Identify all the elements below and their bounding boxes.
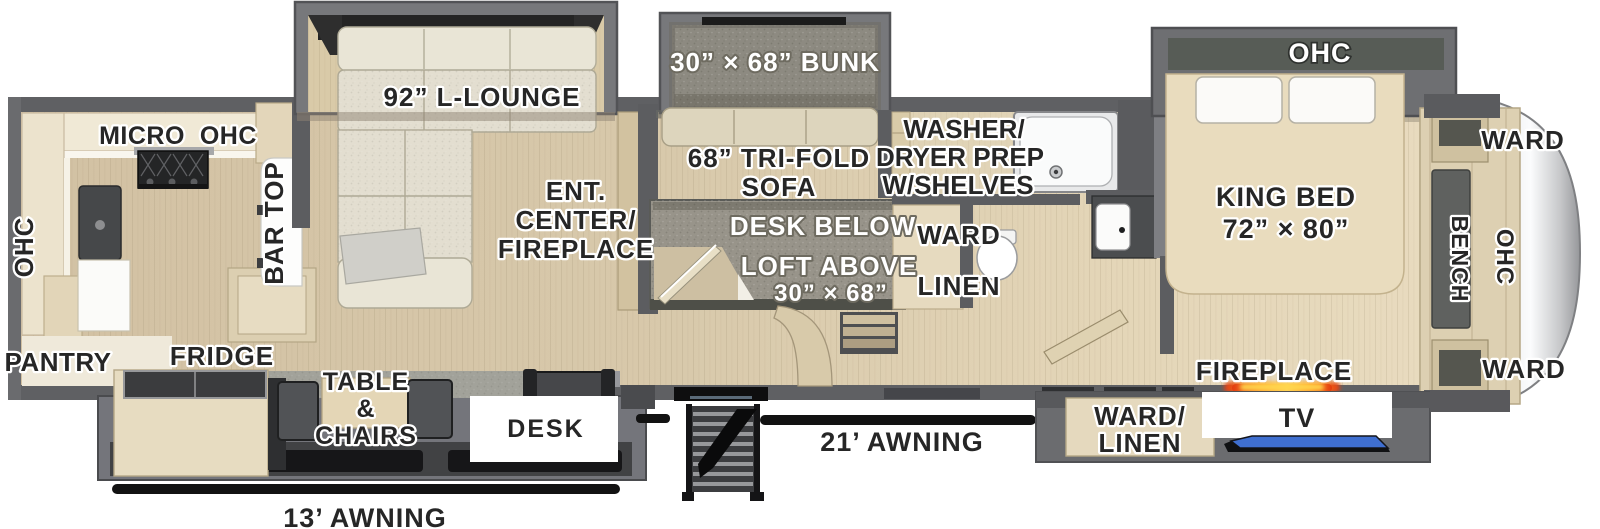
svg-text:DRYER PREP: DRYER PREP bbox=[876, 142, 1044, 172]
svg-text:LINEN: LINEN bbox=[1099, 428, 1182, 458]
svg-text:68” TRI-FOLD: 68” TRI-FOLD bbox=[688, 143, 870, 173]
svg-text:BAR TOP: BAR TOP bbox=[259, 161, 289, 285]
svg-text:13’ AWNING: 13’ AWNING bbox=[283, 503, 447, 529]
svg-text:MICRO OHC: MICRO OHC bbox=[99, 122, 257, 150]
svg-text:CHAIRS: CHAIRS bbox=[315, 422, 417, 450]
svg-text:FIREPLACE: FIREPLACE bbox=[1196, 356, 1352, 386]
svg-text:DESK BELOW: DESK BELOW bbox=[730, 211, 916, 241]
svg-text:30” × 68”: 30” × 68” bbox=[774, 280, 888, 307]
svg-text:OHC: OHC bbox=[9, 217, 39, 278]
svg-text:KING BED: KING BED bbox=[1216, 182, 1356, 212]
svg-text:TV: TV bbox=[1279, 403, 1316, 433]
svg-text:30” × 68” BUNK: 30” × 68” BUNK bbox=[670, 47, 880, 77]
svg-text:WARD: WARD bbox=[917, 220, 1000, 250]
svg-text:21’ AWNING: 21’ AWNING bbox=[820, 427, 984, 457]
svg-text:FRIDGE: FRIDGE bbox=[170, 341, 274, 371]
svg-text:WARD: WARD bbox=[1482, 354, 1565, 384]
svg-text:FIREPLACE: FIREPLACE bbox=[498, 234, 654, 264]
svg-text:PANTRY: PANTRY bbox=[5, 347, 112, 377]
svg-text:OHC: OHC bbox=[1491, 229, 1518, 285]
svg-text:ENT.: ENT. bbox=[546, 176, 606, 206]
svg-text:WARD: WARD bbox=[1481, 125, 1564, 155]
svg-text:&: & bbox=[356, 395, 375, 423]
svg-text:92” L-LOUNGE: 92” L-LOUNGE bbox=[384, 82, 581, 112]
svg-text:WARD/: WARD/ bbox=[1094, 401, 1186, 431]
svg-text:DESK: DESK bbox=[507, 415, 584, 443]
svg-text:CENTER/: CENTER/ bbox=[515, 205, 636, 235]
svg-text:LINEN: LINEN bbox=[918, 271, 1001, 301]
svg-text:OHC: OHC bbox=[1289, 38, 1352, 68]
svg-text:72” × 80”: 72” × 80” bbox=[1223, 214, 1350, 244]
svg-text:SOFA: SOFA bbox=[742, 172, 817, 202]
svg-text:BENCH: BENCH bbox=[1447, 216, 1473, 303]
svg-text:TABLE: TABLE bbox=[323, 368, 409, 396]
svg-text:LOFT ABOVE: LOFT ABOVE bbox=[741, 251, 918, 281]
svg-text:W/SHELVES: W/SHELVES bbox=[882, 170, 1033, 200]
svg-text:WASHER/: WASHER/ bbox=[903, 114, 1024, 144]
